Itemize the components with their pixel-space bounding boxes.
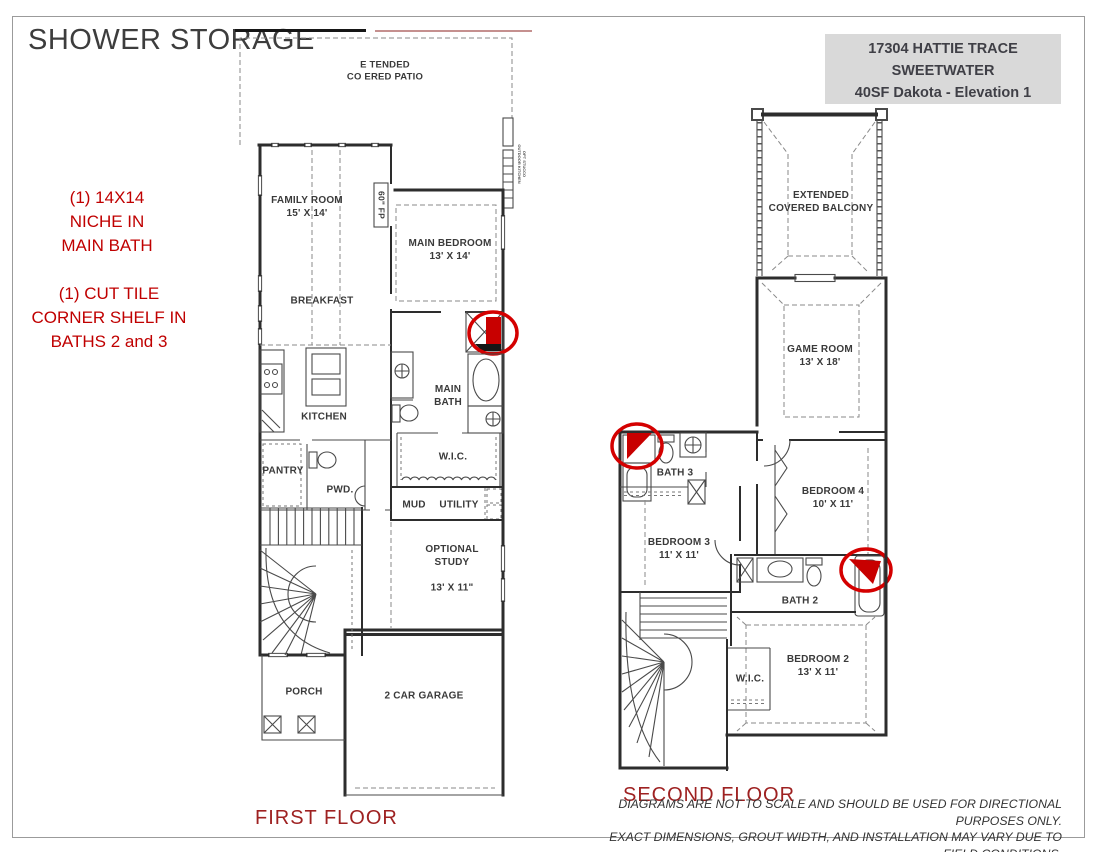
breakfast-dashed-lines — [260, 150, 391, 345]
room-label-bedroom-3: BEDROOM 3 11' X 11' — [648, 536, 710, 562]
main-bath-toilet — [392, 405, 418, 422]
patio-outline — [240, 38, 512, 145]
room-label-study-dim: 13' X 11" — [431, 582, 474, 595]
room-label-outdoor-kitchen-note: OPT STUCCO OUTDOOR KITCHEN — [516, 144, 526, 183]
room-label-fireplace: 60" FP — [375, 191, 386, 219]
room-label-bedroom-4: BEDROOM 4 10' X 11' — [802, 485, 864, 511]
room-label-bath-3: BATH 3 — [657, 467, 694, 480]
room-label-wic-first: W.I.C. — [439, 451, 467, 464]
room-label-garage: 2 CAR GARAGE — [384, 690, 463, 703]
garage — [345, 630, 503, 795]
south-wall — [260, 653, 345, 656]
staircase-second — [622, 592, 727, 770]
room-label-optional-study: OPTIONAL STUDY — [425, 543, 478, 569]
info-address: 17304 HATTIE TRACE — [825, 39, 1061, 61]
room-label-game-room: GAME ROOM 13' X 18' — [787, 343, 853, 369]
annotation-corner-shelf-note: (1) CUT TILE CORNER SHELF IN BATHS 2 and… — [20, 282, 198, 353]
room-label-main-bath: MAIN BATH — [434, 383, 462, 409]
room-label-porch: PORCH — [285, 686, 322, 699]
info-community: SWEETWATER — [825, 61, 1061, 83]
family-room-top-wall — [259, 143, 391, 146]
room-label-kitchen: KITCHEN — [301, 411, 347, 424]
first-floor-plan — [225, 30, 525, 805]
main-bath-vanity — [391, 352, 413, 400]
room-label-wic-second: W.I.C. — [736, 673, 764, 686]
room-label-balcony: EXTENDED COVERED BALCONY — [769, 189, 874, 215]
shower-storage-marker-main-bath — [469, 312, 517, 354]
first-floor-caption: FIRST FLOOR — [255, 807, 398, 830]
room-label-pantry: PANTRY — [262, 465, 303, 478]
room-label-patio: E TENDED CO ERED PATIO — [347, 60, 423, 85]
room-label-breakfast: BREAKFAST — [291, 295, 354, 308]
room-label-powder: PWD. — [327, 484, 354, 497]
floorplan-sheet: SHOWER STORAGE 17304 HATTIE TRACE SWEETW… — [0, 0, 1098, 852]
staircase — [260, 508, 362, 655]
room-label-family-room: FAMILY ROOM 15' X 14' — [271, 194, 343, 220]
page-border — [12, 16, 1085, 838]
room-label-bath-2: BATH 2 — [782, 595, 819, 608]
room-label-bedroom-2: BEDROOM 2 13' X 11' — [787, 653, 849, 679]
annotation-niche-note: (1) 14X14 NICHE IN MAIN BATH — [28, 186, 186, 257]
room-label-mud: MUD — [402, 499, 425, 512]
main-bath-tub — [468, 354, 503, 433]
kitchen-range — [260, 350, 284, 432]
room-label-utility: UTILITY — [439, 499, 478, 512]
plan-info-box: 17304 HATTIE TRACE SWEETWATER 40SF Dakot… — [825, 34, 1061, 104]
room-label-main-bedroom: MAIN BEDROOM 13' X 14' — [409, 237, 492, 263]
info-plan-elevation: 40SF Dakota - Elevation 1 — [825, 83, 1061, 105]
disclaimer-text: DIAGRAMS ARE NOT TO SCALE AND SHOULD BE … — [592, 796, 1062, 852]
kitchen-island — [306, 348, 346, 406]
